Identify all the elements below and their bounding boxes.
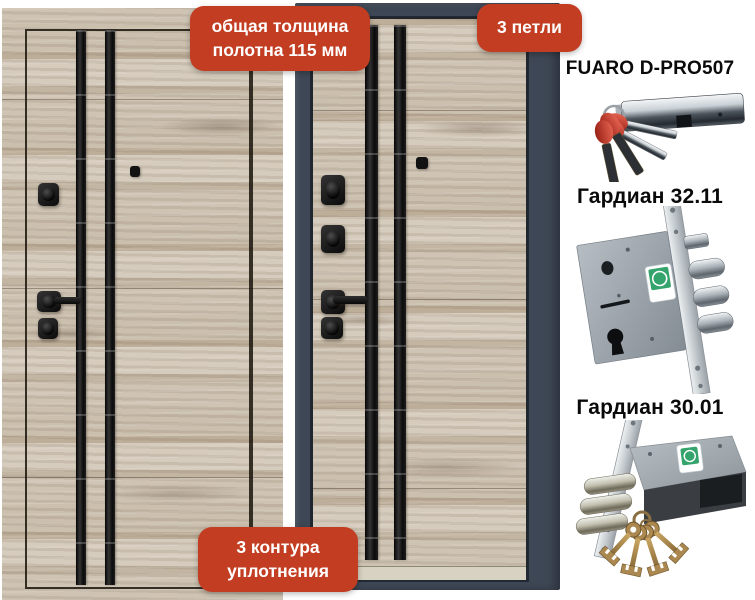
deadbolt-escutcheon bbox=[321, 175, 345, 205]
green-sticker bbox=[645, 263, 676, 303]
black-glass-stripe bbox=[105, 30, 115, 585]
dead-bolt bbox=[696, 311, 734, 334]
black-glass-stripe bbox=[76, 30, 86, 585]
product-title-gardian-3001: Гардиан 30.01 bbox=[545, 396, 755, 420]
green-sticker bbox=[676, 443, 703, 474]
thumbturn-knob bbox=[321, 317, 343, 339]
peephole bbox=[416, 157, 428, 169]
door-in-frame-photo bbox=[288, 0, 568, 600]
peephole bbox=[130, 166, 140, 177]
door-exterior-photo bbox=[0, 0, 286, 600]
door-leaf-exterior bbox=[2, 8, 283, 600]
cylinder-escutcheon bbox=[38, 318, 58, 339]
door-product-collage: FUARO D-PRO507 bbox=[0, 0, 755, 600]
black-glass-stripe bbox=[365, 25, 378, 560]
badge-seal-contours: 3 контура уплотнения bbox=[198, 527, 358, 592]
badge-leaf-thickness: общая толщина полотна 115 мм bbox=[190, 6, 370, 71]
black-glass-stripe bbox=[394, 25, 406, 560]
lock-body bbox=[630, 436, 746, 524]
door-leaf-interior bbox=[313, 19, 526, 566]
mortise-lock-photo bbox=[558, 206, 753, 394]
door-handle-lever bbox=[54, 297, 81, 304]
dead-bolt bbox=[688, 257, 726, 280]
dead-bolt bbox=[692, 284, 730, 307]
deadbolt-escutcheon bbox=[38, 183, 59, 206]
deadbolt-escutcheon bbox=[321, 225, 345, 253]
door-handle-lever bbox=[333, 296, 368, 304]
mortise-lock-with-keys-photo bbox=[550, 420, 755, 598]
lock-cylinder-with-keys-photo bbox=[552, 74, 752, 182]
latch-bolt bbox=[683, 233, 709, 250]
door-frame bbox=[295, 3, 560, 590]
badge-hinges-count: 3 петли bbox=[477, 4, 582, 52]
